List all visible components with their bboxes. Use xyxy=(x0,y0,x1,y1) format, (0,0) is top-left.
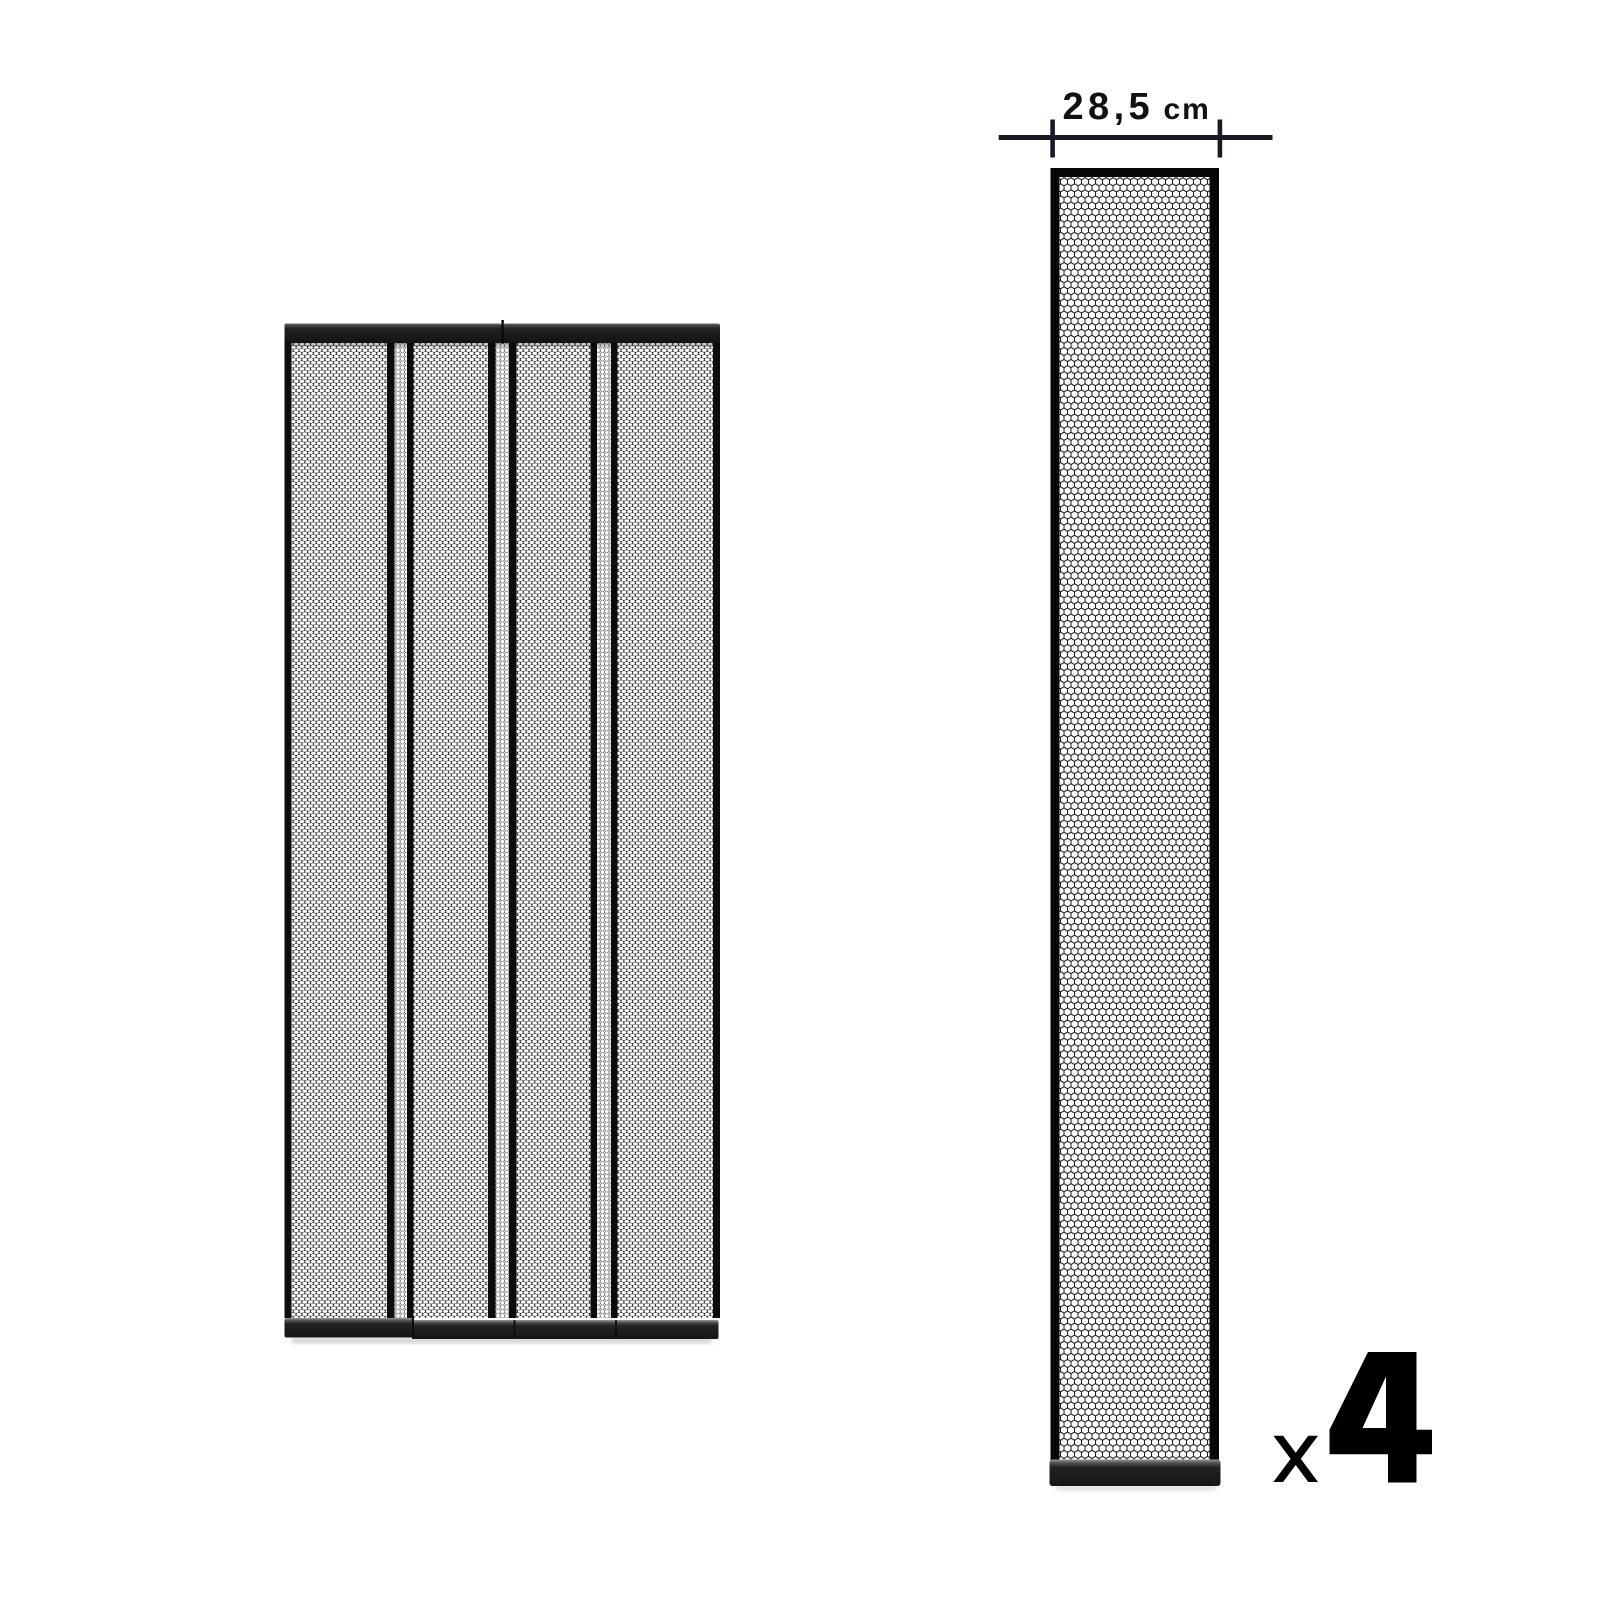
svg-text:28,5: 28,5 xyxy=(1063,86,1155,128)
svg-text:cm: cm xyxy=(1164,93,1211,126)
